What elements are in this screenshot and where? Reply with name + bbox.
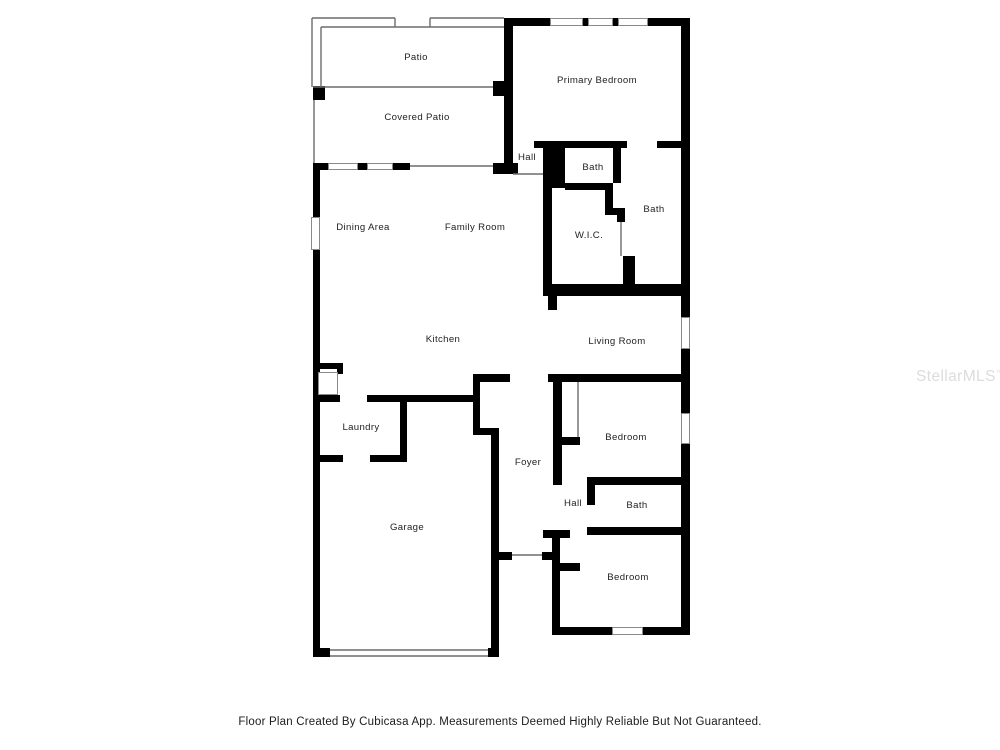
- wall-segment: [548, 296, 557, 310]
- wall-segment: [473, 374, 480, 435]
- wall-segment: [553, 437, 580, 445]
- wall-segment: [491, 428, 499, 657]
- wall-segment: [613, 147, 621, 183]
- window: [682, 414, 690, 444]
- window: [329, 164, 358, 170]
- wall-segment: [313, 395, 340, 402]
- floor-plan-page: PatioCovered PatioPrimary BedroomHallBat…: [0, 0, 1000, 750]
- room-label: Bedroom: [605, 432, 646, 443]
- wall-segment: [560, 563, 580, 571]
- wall-segment: [553, 374, 562, 485]
- room-label: Bath: [582, 162, 603, 173]
- wall-segment: [587, 477, 690, 485]
- wall-segment: [473, 374, 510, 382]
- room-label: Garage: [390, 522, 424, 533]
- wall-segment: [583, 18, 588, 26]
- wall-segment: [543, 148, 565, 188]
- floor-plan: PatioCovered PatioPrimary BedroomHallBat…: [0, 0, 1000, 750]
- wall-segment: [313, 462, 320, 648]
- wall-segment: [313, 163, 320, 217]
- wall-segment: [493, 81, 513, 96]
- wall-segment: [543, 530, 570, 538]
- room-label: Patio: [404, 52, 428, 63]
- window: [319, 373, 338, 395]
- wall-segment: [657, 141, 681, 148]
- room-label: W.I.C.: [575, 230, 603, 241]
- watermark-text: StellarMLS: [916, 368, 996, 385]
- room-label: Laundry: [342, 422, 379, 433]
- wall-segment: [393, 163, 410, 170]
- room-label: Kitchen: [426, 334, 460, 345]
- window: [619, 19, 648, 26]
- wall-segment: [681, 18, 690, 296]
- wall-segment: [681, 444, 690, 635]
- wall-segment: [370, 455, 407, 462]
- room-label: Bath: [643, 204, 664, 215]
- wall-segment: [400, 395, 407, 462]
- wall-segment: [587, 477, 595, 505]
- wall-segment: [313, 455, 343, 462]
- wall-segment: [552, 627, 612, 635]
- wall-segment: [543, 188, 552, 290]
- room-label: Living Room: [588, 336, 645, 347]
- window: [368, 164, 393, 170]
- wall-segment: [367, 395, 480, 402]
- window: [312, 218, 320, 250]
- wall-segment: [613, 18, 618, 26]
- wall-segment: [534, 141, 565, 148]
- room-label: Hall: [564, 498, 582, 509]
- wall-segment: [358, 163, 367, 170]
- room-label: Dining Area: [336, 222, 390, 233]
- window: [551, 19, 583, 26]
- window: [613, 628, 643, 635]
- wall-segment: [313, 250, 320, 363]
- watermark-tm: ™: [996, 370, 1000, 377]
- wall-segment: [313, 86, 325, 100]
- disclaimer-text: Floor Plan Created By Cubicasa App. Meas…: [0, 716, 1000, 728]
- room-label: Covered Patio: [384, 112, 449, 123]
- room-label: Primary Bedroom: [557, 75, 637, 86]
- wall-segment: [492, 552, 512, 560]
- room-label: Bedroom: [607, 572, 648, 583]
- window: [682, 318, 690, 349]
- wall-segment: [493, 163, 518, 174]
- wall-segment: [617, 208, 625, 222]
- wall-segment: [313, 648, 330, 657]
- room-label: Foyer: [515, 457, 542, 468]
- wall-segment: [543, 284, 690, 296]
- wall-segment: [587, 527, 690, 535]
- stellar-mls-watermark: StellarMLS™: [916, 368, 1000, 386]
- room-label: Bath: [626, 500, 647, 511]
- room-label: Family Room: [445, 222, 505, 233]
- wall-segment: [565, 141, 627, 148]
- room-label: Hall: [518, 152, 536, 163]
- wall-segment: [548, 374, 690, 382]
- wall-segment: [681, 349, 690, 413]
- wall-segment: [681, 296, 690, 317]
- window: [589, 19, 613, 26]
- wall-segment: [552, 538, 560, 635]
